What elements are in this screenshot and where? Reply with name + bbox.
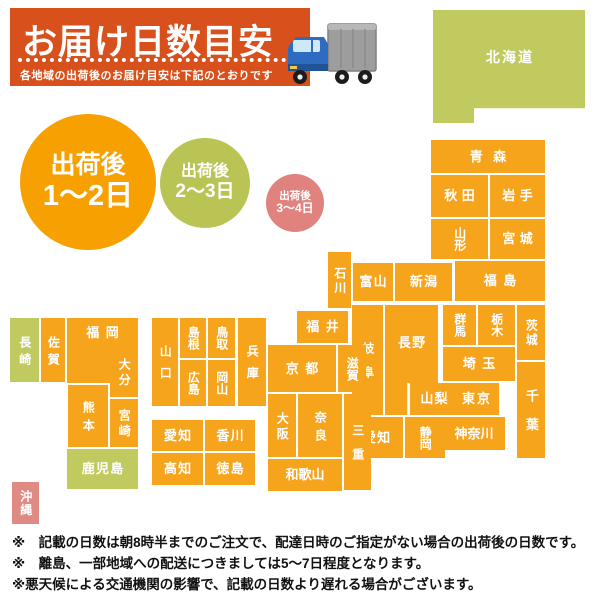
prefecture-label: 山梨 (420, 392, 449, 406)
prefecture-block: 鳥取 (208, 318, 235, 358)
prefecture-block: 山口 (152, 318, 178, 406)
prefecture-label: 佐賀 (47, 336, 60, 370)
prefecture-label: 東京 (462, 392, 492, 406)
note-line: ※悪天候による交通機関の影響で、記載の日数より遅れる場合がございます。 (12, 574, 592, 595)
prefecture-label: 島根 (187, 326, 200, 350)
prefecture-block: 和歌山 (268, 459, 342, 491)
prefecture-label: 青森 (470, 150, 517, 164)
prefecture-label: 広島 (187, 371, 200, 395)
prefecture-label: 新潟 (410, 275, 439, 289)
prefecture-block: 長崎 (10, 318, 39, 382)
prefecture-label: 山形 (453, 227, 466, 251)
prefecture-label: 兵庫 (246, 345, 259, 388)
prefecture-block: 高知 (152, 453, 203, 485)
prefecture-block: 岡山 (208, 360, 235, 406)
prefecture-block: 秋田 (431, 175, 488, 217)
prefecture-block: 徳島 (205, 453, 255, 485)
prefecture-label: 岡山 (215, 371, 228, 395)
prefecture-block: 佐賀 (41, 318, 65, 382)
japan-delivery-map: 北海道青森秋田岩手山形宮城福島新潟富山石川福井群馬栃木茨城埼玉千葉東京山梨神奈川… (0, 0, 600, 600)
prefecture-label: 茨城 (525, 319, 538, 348)
prefecture-block: 富山 (353, 263, 393, 301)
prefecture-block: 山形 (431, 219, 488, 259)
prefecture-label: 宮崎 (118, 409, 131, 440)
prefecture-block: 茨城 (517, 305, 545, 360)
prefecture-label: 岩手 (502, 189, 537, 203)
prefecture-label: 奈良 (314, 411, 327, 447)
prefecture-block: 京都 (268, 345, 336, 392)
prefecture-label: 鳥取 (215, 326, 228, 350)
prefecture-block: 鹿児島 (67, 449, 138, 489)
prefecture-label: 愛知 (164, 429, 193, 443)
prefecture-label: 神奈川 (454, 427, 493, 441)
prefecture-block: 北海道 (433, 10, 585, 123)
prefecture-label: 徳島 (216, 462, 245, 476)
prefecture-block: 宮城 (490, 219, 545, 259)
prefecture-label: 栃木 (490, 313, 503, 337)
prefecture-block: 熊本 (68, 385, 108, 447)
prefecture-block: 神奈川 (443, 417, 505, 450)
prefecture-block: 愛知 (152, 420, 203, 451)
prefecture-block: 新潟 (395, 263, 452, 301)
prefecture-block: 大分 (110, 347, 138, 397)
prefecture-label: 福島 (484, 274, 523, 288)
note-line: ※ 離島、一部地域への配送につきましては5～7日程度となります。 (12, 553, 592, 574)
prefecture-label: 大分 (118, 358, 131, 389)
prefecture-block: 東京 (453, 383, 499, 415)
prefecture-label: 滋賀 (346, 357, 359, 381)
prefecture-label: 大阪 (276, 412, 289, 443)
prefecture-label: 沖縄 (19, 490, 32, 516)
prefecture-block: 埼玉 (443, 347, 515, 381)
prefecture-label: 千葉 (524, 389, 538, 446)
prefecture-block: 岩手 (490, 175, 545, 217)
prefecture-block: 香川 (205, 420, 255, 451)
prefecture-label: 静岡 (419, 426, 432, 450)
prefecture-label: 三重 (351, 424, 364, 472)
prefecture-block: 山梨 (410, 383, 458, 415)
prefecture-label: 福井 (306, 320, 345, 334)
prefecture-block: 千葉 (517, 362, 545, 458)
prefecture-label: 埼玉 (463, 357, 502, 371)
footer-notes: ※ 記載の日数は朝8時半までのご注文で、配達日時のご指定がない場合の出荷後の日数… (12, 532, 592, 595)
prefecture-label: 富山 (359, 275, 388, 289)
prefecture-block: 青森 (431, 140, 545, 173)
prefecture-block: 宮崎 (110, 399, 138, 447)
prefecture-label: 香川 (216, 429, 245, 443)
prefecture-label: 京都 (286, 362, 325, 376)
prefecture-block: 兵庫 (238, 318, 266, 406)
prefecture-label: 石川 (333, 267, 346, 296)
note-line: ※ 記載の日数は朝8時半までのご注文で、配達日時のご指定がない場合の出荷後の日数… (12, 532, 592, 553)
prefecture-label: 熊本 (82, 401, 95, 437)
prefecture-label: 長崎 (18, 336, 31, 370)
prefecture-block: 滋賀 (338, 345, 366, 392)
prefecture-label: 秋田 (444, 189, 479, 203)
prefecture-block: 沖縄 (12, 482, 39, 524)
prefecture-label: 山口 (159, 345, 172, 388)
prefecture-block: 静岡 (405, 417, 445, 458)
prefecture-block: 福島 (455, 261, 545, 301)
prefecture-label: 福岡 (86, 326, 125, 340)
prefecture-label: 鹿児島 (82, 462, 125, 476)
prefecture-block: 三重 (344, 394, 371, 490)
prefecture-label: 和歌山 (285, 468, 324, 482)
prefecture-block: 石川 (328, 252, 351, 308)
prefecture-label: 宮城 (502, 232, 537, 246)
prefecture-block: 栃木 (478, 305, 515, 345)
prefecture-label: 高知 (164, 462, 193, 476)
prefecture-label: 群馬 (453, 313, 466, 337)
prefecture-label: 北海道 (486, 50, 534, 65)
prefecture-block: 奈良 (298, 394, 342, 457)
prefecture-block: 大阪 (268, 394, 296, 457)
prefecture-block: 島根 (180, 318, 206, 358)
prefecture-label: 長野 (398, 336, 427, 350)
prefecture-block: 広島 (180, 360, 206, 406)
prefecture-block: 福井 (297, 311, 348, 343)
prefecture-block: 群馬 (443, 305, 476, 345)
